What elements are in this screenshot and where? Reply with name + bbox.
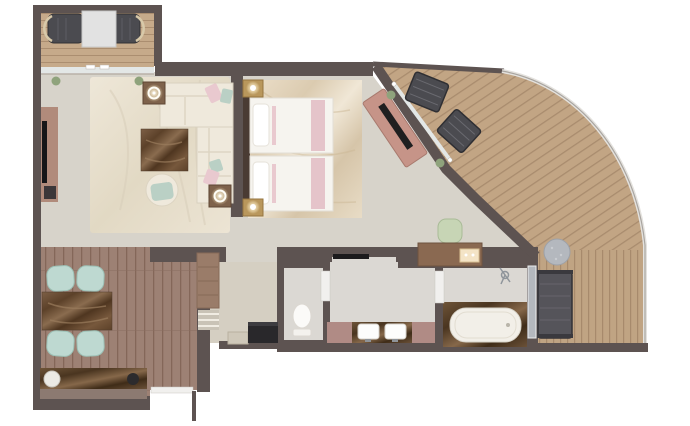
headboard [243, 96, 250, 214]
pink-fold [272, 106, 276, 145]
wall-nook-wc [277, 262, 284, 345]
door-post [448, 158, 452, 162]
faucet [365, 339, 371, 342]
round-table [544, 239, 570, 265]
tv-screen [42, 121, 47, 183]
pink-fold [272, 164, 276, 203]
tv-console [44, 186, 56, 199]
sofa-top-arm [160, 83, 233, 127]
desk-lit-drawer [460, 249, 479, 262]
planter [387, 91, 396, 100]
shelf [198, 325, 219, 327]
sink [385, 324, 406, 339]
wc-door [321, 271, 330, 301]
deck-chair [44, 14, 84, 43]
dining-chair [76, 265, 104, 291]
lamp-center [219, 195, 222, 198]
veranda-sliding-door [41, 67, 154, 74]
floor-plant [52, 77, 61, 86]
dining-table-set [42, 265, 112, 357]
table-speckle [555, 258, 557, 260]
wall-veranda-right [154, 5, 162, 66]
sideboard-front [40, 389, 147, 399]
tub-drain [506, 323, 510, 327]
bathroom-sliding-door [333, 254, 369, 259]
floor-plant [135, 77, 144, 86]
bathtub-room-floor [443, 262, 527, 307]
tub-room-door [435, 271, 444, 303]
side-table-lamp [209, 185, 231, 207]
wall-main-top [155, 62, 373, 76]
bed-pillow [253, 104, 269, 146]
drawer-light [465, 254, 468, 257]
wall-bath-block-top-b [277, 262, 330, 268]
lamp [250, 204, 256, 210]
nightstand-lamp [243, 80, 263, 97]
bed-pillow [253, 162, 269, 204]
coffee-table-top [141, 129, 188, 171]
faucet [392, 339, 398, 342]
deck-table [82, 11, 116, 47]
nightstand-lamp [243, 199, 263, 216]
sideboard [40, 368, 147, 399]
dining-table [42, 292, 112, 330]
planter [436, 159, 445, 168]
armchair [146, 174, 178, 206]
wall-left-outer [33, 5, 41, 410]
daybed-body [538, 272, 572, 338]
toilet-bowl [293, 304, 311, 328]
tv-panel [41, 107, 58, 202]
drawer-light [472, 254, 475, 257]
minibar-top [248, 322, 278, 326]
decor-bowl [44, 371, 60, 387]
toilet-tank [293, 329, 311, 336]
armchair-cushion [150, 182, 174, 202]
bathtub-glass-panel [528, 266, 536, 338]
bathroom [327, 322, 435, 343]
round-table-top [544, 239, 570, 265]
wall-balcony-bottom [533, 343, 648, 352]
dining-chair [46, 330, 75, 357]
luggage-bench [228, 332, 248, 344]
entry [151, 387, 194, 421]
bathroom-floor [330, 262, 435, 323]
entry-door-threshold [151, 387, 193, 393]
bathtub [450, 308, 521, 342]
door-handle [100, 65, 109, 69]
daybed-rail [537, 270, 573, 274]
forward-veranda [44, 11, 143, 47]
floor-plan-image [0, 0, 690, 426]
twin-bed [250, 98, 333, 153]
water-closet [293, 304, 311, 336]
lamp-center [153, 92, 156, 95]
bed-runner [311, 158, 325, 209]
table-speckle [560, 254, 562, 256]
table-speckle [551, 247, 553, 249]
shelf [198, 313, 219, 315]
lamp [250, 85, 256, 91]
desk-chair [438, 219, 462, 243]
sink [358, 324, 379, 339]
door-post [392, 82, 396, 86]
door-handle [86, 65, 95, 69]
dining-chair [76, 330, 104, 356]
bed-runner [311, 100, 325, 151]
kettle [127, 373, 139, 385]
coffee-table [141, 129, 188, 171]
dining-chair [46, 265, 75, 292]
entry-corridor-floor [150, 262, 197, 390]
side-table-lamp [143, 82, 165, 104]
wall-bath-block-top [277, 247, 538, 262]
floor-plan-svg [0, 0, 690, 426]
shelf [198, 319, 219, 321]
daybed [537, 270, 573, 338]
daybed-rail [537, 334, 573, 338]
